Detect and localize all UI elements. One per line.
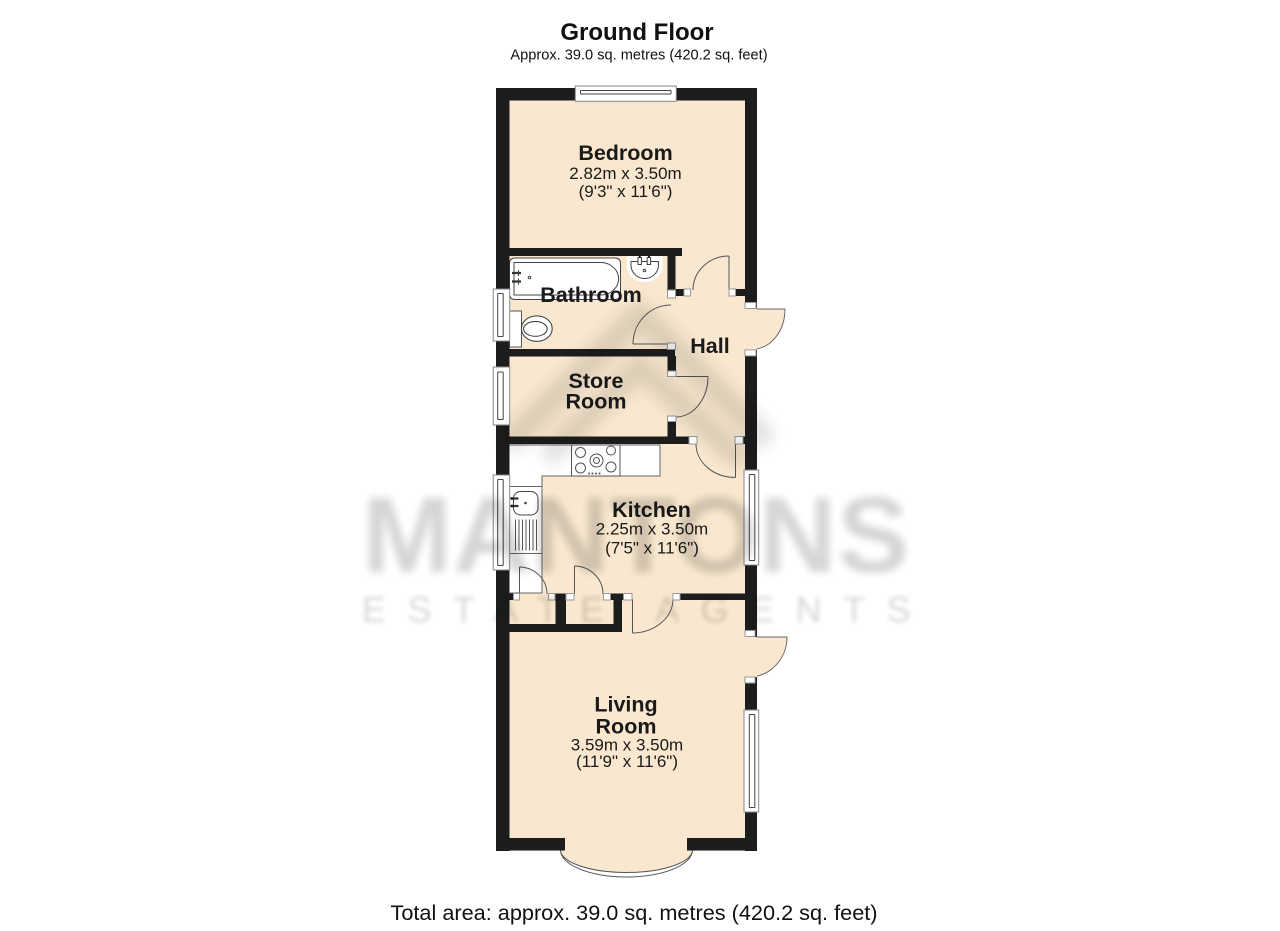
svg-text:(9'3" x 11'6"): (9'3" x 11'6") [579,182,673,201]
svg-text:(11'9" x 11'6"): (11'9" x 11'6") [576,752,678,771]
svg-text:2.82m x 3.50m: 2.82m x 3.50m [569,164,681,183]
svg-text:MANTONS: MANTONS [362,474,910,595]
svg-text:Ground Floor: Ground Floor [560,19,713,46]
svg-text:Bedroom: Bedroom [578,141,672,165]
svg-text:Total area: approx. 39.0 sq. m: Total area: approx. 39.0 sq. metres (420… [390,900,877,925]
svg-text:Living: Living [594,693,657,717]
svg-text:ESTATE AGENTS: ESTATE AGENTS [362,589,932,630]
svg-text:Approx. 39.0 sq. metres (420.2: Approx. 39.0 sq. metres (420.2 sq. feet) [510,48,767,64]
svg-text:Bathroom: Bathroom [540,283,642,307]
